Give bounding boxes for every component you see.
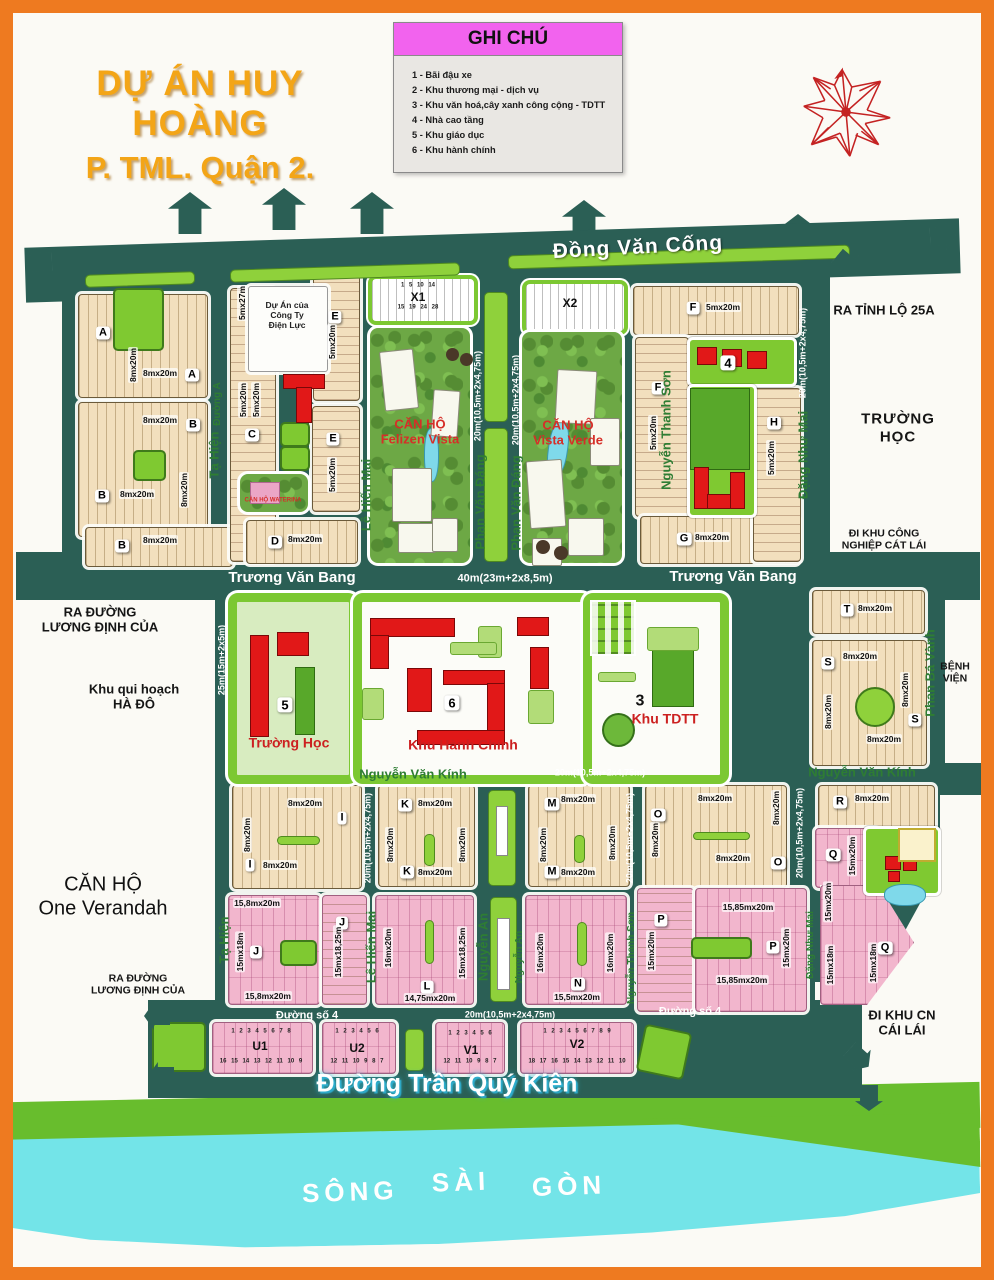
lot-numbers-X1: 1 5 10 14 (401, 282, 435, 289)
zone-label-U1: U1 (252, 1039, 267, 1053)
label-can-ho-one-verandah: CĂN HỘ One Verandah (39, 873, 168, 920)
map-label: 15mx18m (868, 943, 878, 984)
map-label: 8mx20m (900, 672, 910, 708)
map-shape-darkc (554, 546, 568, 560)
lot-numbers-U1: 1 2 3 4 5 6 7 8 (231, 1028, 290, 1035)
block-letter-I: I (337, 812, 346, 825)
map-label: 15,5mx20m (553, 992, 601, 1002)
map-shape-median (405, 1029, 424, 1071)
map-shape-bwhite (392, 468, 432, 522)
map-label: 8mx20m (417, 798, 453, 808)
map-label: 8mx20m (179, 472, 189, 508)
map-shape-whitebox (496, 806, 508, 856)
map-label: 8mx20m (715, 853, 751, 863)
map-shape-park (280, 446, 310, 471)
road-width-label: 25m(15m+2x5m) (217, 625, 228, 695)
block-letter-S: S (908, 714, 921, 727)
street-nguyen-an: Nguyễn An (514, 931, 526, 983)
map-shape-pool (884, 884, 926, 906)
zone-label-X1: X1 (411, 290, 426, 304)
map-label: 15,85mx20m (722, 902, 775, 912)
planning-map-page: SÔNG SÀI GÒN AABBBCDEEFFGHTSSIIKKMMOORJJ… (0, 0, 994, 1280)
label-di-khu-cn-cai-lai: ĐI KHU CN CÁI LÁI (856, 1008, 948, 1039)
block-letter-A: A (96, 327, 110, 340)
street-le-hien-mai: Lê Hiến Mai (363, 911, 378, 983)
road-junction-cap (262, 188, 306, 230)
page-title: DỰ ÁN HUY HOÀNG P. TML. Quận 2. (30, 64, 370, 186)
block-letter-T: T (841, 604, 854, 617)
road-width-label: 20m(10,5m+2x4,75m) (465, 1010, 555, 1021)
road-width-label: 20m(10,5m+2x4,75m) (795, 788, 806, 878)
road-junction-cap (350, 192, 394, 234)
map-shape-bwhite (526, 459, 567, 529)
street-dang-nhu-mai: Đặng Như Mai (795, 411, 810, 499)
block-letter-P: P (654, 914, 667, 927)
map-shape-bgreenl (528, 690, 554, 724)
map-label: 15mx20m (781, 928, 791, 969)
compass-rose-icon (798, 64, 894, 160)
map-label: 8mx20m (857, 603, 893, 613)
block-letter-L: L (421, 981, 434, 994)
block-letter-C: C (245, 429, 259, 442)
block-letter-G: G (677, 533, 692, 546)
street-nguyen-van-kinh: Nguyễn Văn Kính (359, 766, 467, 781)
label-can-ho-vista-verde: CĂN HỘ Vista Verde (533, 418, 603, 449)
map-label: 8mx20m (242, 817, 252, 853)
map-shape-median (484, 292, 508, 422)
zone-label-U2: U2 (349, 1041, 364, 1055)
map-shape-median (574, 835, 585, 863)
street-le-hien-mai: Lê Hiến Mai (358, 459, 373, 531)
map-label: 8mx20m (650, 822, 660, 858)
map-shape-park (113, 288, 164, 351)
label-benh-vien: BỆNH VIỆN (936, 661, 975, 686)
map-shape-bwhite (568, 518, 604, 556)
map-shape-bgreen (295, 667, 315, 735)
lot-numbers-U2: 12 11 10 9 8 7 (330, 1058, 383, 1065)
block-letter-S: S (821, 657, 834, 670)
map-shape-bwhite (398, 523, 436, 553)
map-label: 15mx20m (646, 931, 656, 972)
map-label: 5mx20m (238, 382, 248, 418)
map-label: 8mx20m (142, 535, 178, 545)
map-label: 5mx20m (327, 324, 337, 360)
street-phan-van-dang: Phan Văn Đáng (472, 454, 487, 549)
lot-numbers-V1: 1 2 3 4 5 6 (448, 1030, 491, 1037)
map-shape-bred (697, 347, 717, 365)
project-title-line1: DỰ ÁN HUY HOÀNG (30, 64, 370, 144)
map-label: 14,75mx20m (404, 993, 457, 1003)
map-label: 8mx20m (866, 734, 902, 744)
label-can-ho-felizen-vista: CĂN HỘ Felizen Vista (381, 417, 460, 448)
map-label: 8mx20m (142, 415, 178, 425)
map-label: 8mx20m (385, 827, 395, 863)
lot-numbers-U1: 16 15 14 13 12 11 10 9 (220, 1058, 302, 1065)
zone-label-X2: X2 (563, 296, 578, 310)
road-width-label: 20m(10,5m+2x4,75m) (473, 351, 484, 441)
map-label: 15,85mx20m (716, 975, 769, 985)
legend-item: 6 - Khu hành chính (412, 143, 616, 158)
lot-numbers-V1: 12 11 10 9 8 7 (443, 1058, 496, 1065)
legend-item: 2 - Khu thương mại - dịch vụ (412, 83, 616, 98)
map-label: 8mx20m (128, 347, 138, 383)
map-label: 8mx20m (560, 867, 596, 877)
map-label: 15,8mx20m (233, 898, 281, 908)
map-label: 8mx20m (854, 793, 890, 803)
map-label: 8mx20m (262, 860, 298, 870)
map-shape-bred (296, 387, 312, 423)
map-label: 5mx20m (327, 457, 337, 493)
map-shape-bred (370, 635, 389, 669)
street-duong-a: Đường A (212, 382, 224, 425)
map-shape-bgreenl (362, 688, 384, 720)
map-label: 8mx20m (771, 790, 781, 826)
street-truong-van-bang: Trương Văn Bang (228, 569, 355, 587)
block-letter-F: F (687, 302, 700, 315)
project-title-line2: P. TML. Quận 2. (30, 150, 370, 186)
label-khu-hanh-chinh: Khu Hành Chính (408, 737, 518, 754)
map-label: 15mx20m (823, 882, 833, 923)
map-shape-bgreen (690, 388, 750, 470)
block-letter-Q: Q (878, 942, 893, 955)
map-label: 8mx20m (457, 827, 467, 863)
map-label: 16mx20m (383, 928, 393, 969)
street-nguyen-van-kinh: Nguyễn Văn Kính (808, 764, 916, 779)
street-phan-van-dang: Phan Văn Đáng (508, 455, 523, 550)
block-letter-A: A (185, 369, 199, 382)
label-di-khu-cong-nghiep-cat-lai: ĐI KHU CÔNG NGHIỆP CÁT LÁI (829, 528, 939, 553)
map-label: 15mx18,25m (333, 926, 343, 979)
block-letter-B: B (115, 540, 129, 553)
label-du-an-dien-luc: Dự Án của Công Ty Điện Lực (266, 300, 309, 330)
street-truong-van-bang: Trương Văn Bang (669, 568, 796, 586)
road-width-label: 20m(10,5m+2x4,75m) (511, 355, 522, 445)
block-letter-B: B (95, 490, 109, 503)
map-label: 5mx20m (251, 382, 261, 418)
block-letter-O: O (771, 857, 786, 870)
map-label: 16mx20m (535, 933, 545, 974)
map-shape-bred (730, 472, 745, 509)
map-shape-park (280, 940, 317, 966)
lot-numbers-U2: 1 2 3 4 5 6 (335, 1028, 378, 1035)
map-shape-park (280, 422, 310, 447)
street-duong-tran-quy-kien: Đường Trần Quý Kiên (317, 1069, 578, 1099)
map-label: 8mx20m (142, 368, 178, 378)
map-shape-bgreenl (598, 672, 636, 682)
block-letter-Q: Q (826, 849, 841, 862)
block-letter-R: R (833, 796, 847, 809)
map-label: 8mx20m (560, 794, 596, 804)
map-label: 5mx20m (648, 415, 658, 451)
map-label: 15mx20m (847, 836, 857, 877)
street-dang-nhu-mai: Đặng Như Mai (805, 911, 817, 979)
lot-numbers-V2: 1 2 3 4 5 6 7 8 9 (543, 1028, 610, 1035)
map-shape-whitebox (497, 918, 510, 990)
map-shape-bred (747, 351, 767, 369)
map-shape-bwhite (432, 518, 458, 552)
map-shape-bwhite (379, 348, 419, 411)
lot-numbers-X1: 15 19 24 28 (398, 304, 439, 311)
block-letter-M: M (544, 798, 559, 811)
map-label: 15,8mx20m (244, 991, 292, 1001)
block-letter-N: N (571, 978, 585, 991)
legend-item: 1 - Bãi đậu xe (412, 68, 616, 83)
map-shape-park (152, 1022, 206, 1072)
zone-number-5: 5 (277, 697, 292, 712)
street-duong-so-4: Đường số 4 (276, 1010, 338, 1023)
map-label: 16mx20m (605, 933, 615, 974)
map-shape-median (577, 922, 587, 966)
road-width-label: 20m(10,5m+2x4,75m) (798, 308, 809, 398)
street-ta-hien: Tạ Hiện (206, 432, 221, 479)
legend-item: 3 - Khu văn hoá,cây xanh công cộng - TDT… (412, 98, 616, 113)
block-letter-K: K (398, 799, 412, 812)
map-shape-median (277, 836, 320, 845)
map-shape-yellowb (898, 828, 936, 862)
map-label: 8mx20m (287, 798, 323, 808)
road-junction-cap (168, 192, 212, 234)
block-zone5-truong-hoc (228, 593, 358, 784)
map-shape-median (424, 834, 435, 866)
map-label: 5mx20m (705, 302, 741, 312)
map-label: 15mx18,25m (457, 927, 467, 980)
street-duong-so-4: Đường số 4 (659, 1006, 721, 1019)
zone-label-V1: V1 (464, 1043, 479, 1057)
zone-number-4: 4 (720, 355, 735, 370)
block-letter-H: H (767, 417, 781, 430)
map-label: 15mx18m (235, 932, 245, 973)
map-shape-circ (855, 687, 895, 727)
map-shape-park (133, 450, 166, 481)
block-letter-E: E (326, 433, 339, 446)
map-shape-bred (250, 635, 269, 737)
map-shape-darkc (536, 540, 550, 554)
legend-item: 5 - Khu giáo dục (412, 128, 616, 143)
map-shape-bgreenl (450, 642, 497, 655)
label-truong-hoc-area: TRƯỜNG HỌC (850, 410, 946, 445)
map-shape-bred (407, 668, 432, 712)
road-width-label: 20m(10,5m+2x4,75m) (625, 793, 636, 883)
map-label: 8mx20m (417, 867, 453, 877)
map-shape-bred (888, 871, 900, 882)
legend-header: GHI CHÚ (394, 23, 622, 56)
map-shape-bwhite (555, 369, 598, 425)
map-label: 8mx20m (119, 489, 155, 499)
block-letter-D: D (268, 536, 282, 549)
map-shape-park (636, 1024, 693, 1081)
block-letter-J: J (250, 946, 262, 959)
label-ra-tinh-lo-25a: RA TỈNH LỘ 25A (833, 302, 934, 317)
block-letter-E: E (328, 311, 341, 324)
label-ra-duong-luong-dinh-cua-2: RA ĐƯỜNG LƯƠNG ĐỊNH CỦA (91, 973, 185, 998)
block-letter-K: K (400, 866, 414, 879)
block-letter-B: B (186, 419, 200, 432)
map-shape-bred (517, 617, 549, 636)
legend-item: 4 - Nhà cao tầng (412, 113, 616, 128)
map-label: 5mx20m (766, 440, 776, 476)
lot-numbers-V2: 18 17 16 15 14 13 12 11 10 (528, 1058, 625, 1065)
block-letter-I: I (245, 859, 254, 872)
map-label: 8mx20m (823, 694, 833, 730)
block-H (753, 388, 801, 562)
map-label: 5mx27m (237, 285, 247, 321)
block-letter-O: O (651, 809, 666, 822)
block-letter-P: P (766, 941, 779, 954)
map-shape-median (693, 832, 750, 840)
label-ra-duong-luong-dinh-cua-1: RA ĐƯỜNG LƯƠNG ĐỊNH CỦA (42, 605, 158, 636)
map-shape-bred (277, 632, 309, 656)
street-nguyen-thanh-son: Nguyễn Thanh Sơn (626, 912, 638, 1004)
map-shape-darkc (446, 348, 459, 361)
road-width-label: 40m(23m+2x8,5m) (457, 573, 552, 586)
label-khu-qui-hoach-ha-do: Khu qui hoạch HÀ ĐÔ (89, 682, 179, 713)
map-canvas: AABBBCDEEFFGHTSSIIKKMMOORJJLNPPQQ4563X1X… (0, 0, 994, 1280)
block-J-east (322, 895, 367, 1005)
legend: GHI CHÚ 1 - Bãi đậu xe 2 - Khu thương mạ… (393, 22, 623, 173)
map-label: 8mx20m (607, 825, 617, 861)
zone-number-6: 6 (444, 695, 459, 710)
label-can-ho-waterina: CĂN HỘ WATERINA (245, 497, 302, 504)
map-shape-bred (530, 647, 549, 689)
road-width-label: 20m(10,5m+2x4,75m) (555, 768, 645, 779)
block-letter-M: M (544, 866, 559, 879)
label-truong-hoc: Trường Học (249, 735, 330, 752)
map-shape-darkc (460, 353, 473, 366)
road-width-label: 20m(10,5m+2x4,75m) (363, 793, 374, 883)
map-shape-park (691, 937, 752, 959)
map-label: 8mx20m (538, 827, 548, 863)
map-shape-circ2 (602, 713, 635, 747)
map-shape-median (425, 920, 434, 964)
zone-number-3: 3 (636, 693, 645, 712)
map-label: 8mx20m (694, 532, 730, 542)
zone-label-V2: V2 (570, 1037, 585, 1051)
legend-items: 1 - Bãi đậu xe 2 - Khu thương mại - dịch… (394, 56, 622, 172)
street-ta-hien: Tạ Hiện (216, 917, 231, 964)
map-shape-bgreenl (647, 627, 699, 651)
label-khu-tdtt: Khu TDTT (632, 711, 699, 728)
map-label: 8mx20m (697, 793, 733, 803)
map-label: 8mx20m (842, 651, 878, 661)
map-shape-seats (590, 600, 636, 656)
map-label: 8mx20m (287, 534, 323, 544)
map-label: 15mx18m (825, 945, 835, 986)
street-nguyen-thanh-son: Nguyễn Thanh Sơn (658, 370, 673, 490)
block-B-south (85, 527, 233, 567)
street-nguyen-an: Nguyễn An (475, 913, 490, 981)
